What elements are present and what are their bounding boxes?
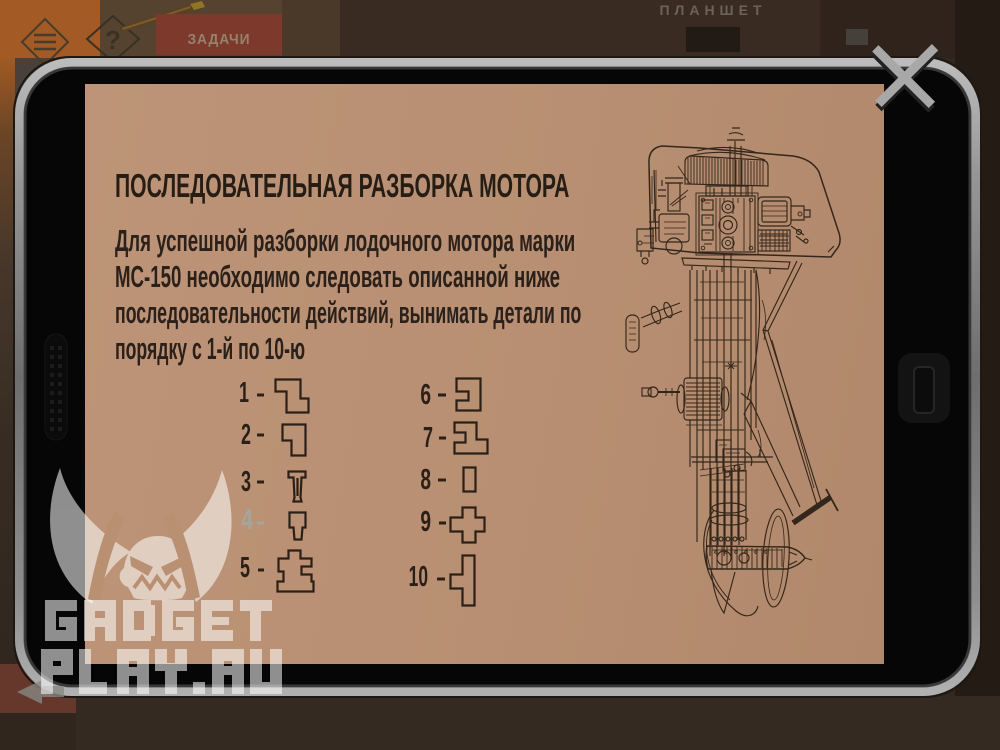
- svg-text:9: 9: [420, 506, 431, 538]
- svg-text:7: 7: [423, 422, 433, 454]
- svg-text:6: 6: [420, 379, 431, 411]
- svg-text:1: 1: [239, 377, 249, 409]
- svg-text:8: 8: [420, 464, 431, 496]
- svg-text:2: 2: [241, 419, 251, 451]
- svg-text:10: 10: [409, 561, 428, 594]
